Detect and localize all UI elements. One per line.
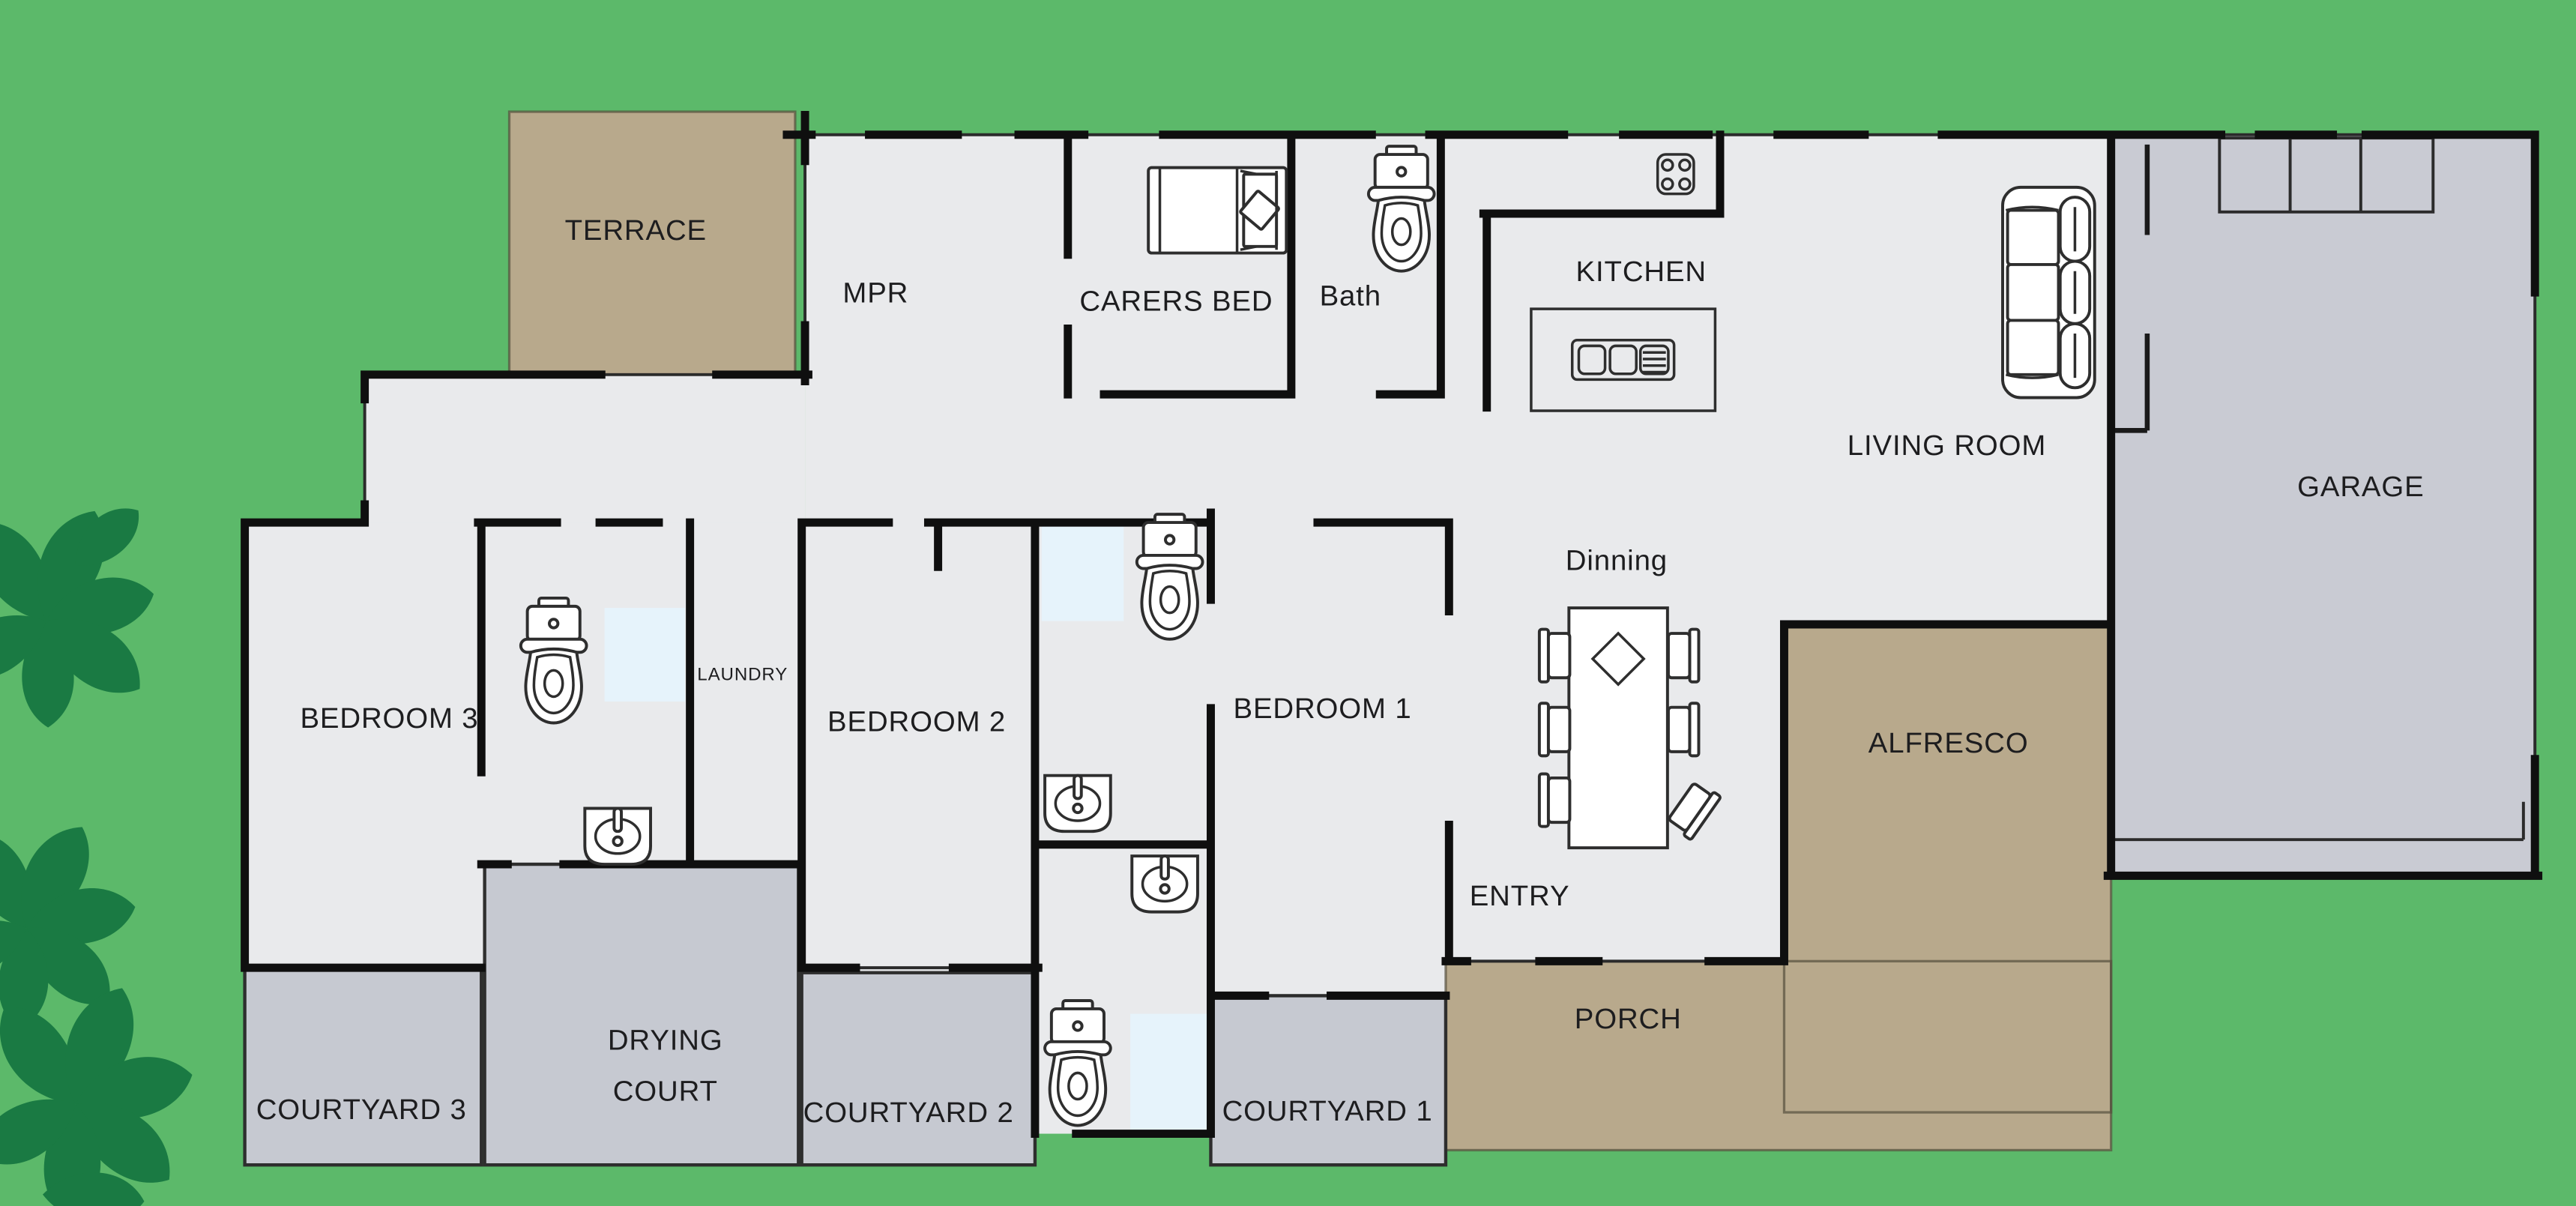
room-label-kitchen: KITCHEN [1576,256,1707,288]
drying-court-area [485,864,799,1165]
room-label-carers-bed: CARERS BED [1079,285,1273,317]
room-label-bath: Bath [1320,280,1381,313]
room-label-courtyard-2: COURTYARD 2 [803,1097,1014,1129]
bed-icon [1148,168,1286,253]
chair-icon [1668,630,1699,682]
sofa-icon [2003,187,2095,398]
room-label-porch: PORCH [1575,1003,1682,1035]
chair-icon [1539,703,1570,756]
garage-area [2111,135,2536,876]
room-label-alfresco: ALFRESCO [1868,727,2029,759]
room-label-bedroom-2: BEDROOM 2 [827,705,1006,738]
sink-icon [1045,776,1111,832]
floor-plan-svg: TERRACEMPRCARERS BEDBathKITCHENLIVING RO… [0,0,2576,1206]
room-label-courtyard-1: COURTYARD 1 [1222,1095,1433,1127]
chair-icon [1539,774,1570,826]
room-label-garage: GARAGE [2297,471,2424,503]
dining-table-icon [1569,608,1668,848]
porch-area [1446,961,2111,1150]
toilet-icon [1045,1001,1111,1126]
sink-icon [1132,856,1198,912]
chair-icon [1539,630,1570,682]
room-label-courtyard-3: COURTYARD 3 [256,1094,467,1126]
toilet-icon [521,598,587,723]
room-label-terrace: TERRACE [565,214,707,247]
toilet-icon [1137,514,1203,639]
floor-plan-screenshot: TERRACEMPRCARERS BEDBathKITCHENLIVING RO… [0,0,2576,1206]
chair-icon [1668,703,1699,756]
courtyard-3-area [245,968,482,1165]
room-label-bedroom-1: BEDROOM 1 [1233,693,1411,725]
toilet-icon [1369,146,1435,271]
room-label-bedroom-3: BEDROOM 3 [300,702,478,735]
room-label-living-room: LIVING ROOM [1847,429,2046,462]
courtyard-1-area [1210,995,1445,1165]
room-label-dinning: Dinning [1566,545,1668,577]
sink-icon [585,809,651,865]
room-label-entry: ENTRY [1470,880,1570,912]
room-label-mpr: MPR [842,277,908,309]
room-label-laundry: LAUNDRY [697,665,788,685]
courtyard-2-area [802,973,1035,1165]
